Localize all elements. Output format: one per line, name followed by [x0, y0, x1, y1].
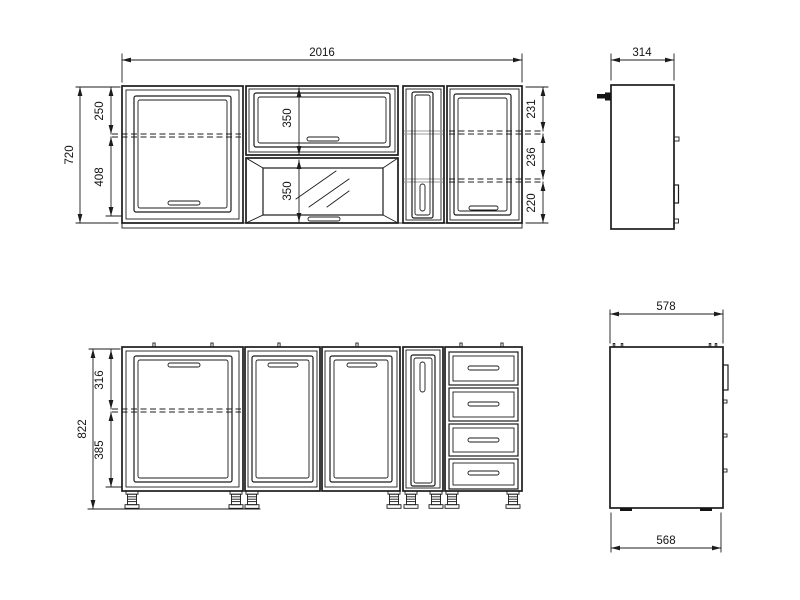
dim-label-wall-width: 2016: [309, 47, 335, 59]
side-carcass: [610, 347, 723, 508]
dim-label-231: 231: [526, 99, 538, 118]
cabinet-door: [254, 93, 390, 147]
dim-base-side-bottom-width: 568: [611, 513, 721, 552]
door-handle-vertical: [420, 184, 425, 211]
dim-label-316: 316: [94, 370, 106, 389]
drawer-handle-2: [468, 402, 499, 406]
cabinet-door-panel: [334, 360, 388, 478]
dim-label-822: 822: [77, 419, 89, 438]
wall-cabinet-middle-glass: [246, 158, 398, 223]
dim-label-220: 220: [526, 193, 538, 212]
cabinet-carcass-inner: [126, 351, 239, 487]
dim-base-side-depth: 578: [610, 301, 723, 343]
adjustable-foot: [245, 491, 259, 508]
dim-label-wall-height: 720: [64, 145, 76, 164]
frame-bevel: [246, 215, 263, 223]
door-handle: [168, 363, 200, 367]
wall-cabinet-side-view: 314: [597, 47, 679, 229]
drawer-panel-4: [453, 463, 514, 485]
cabinet-carcass-inner: [325, 351, 397, 487]
drawer-front-2: [449, 388, 518, 421]
base-cabinets-front-view: 822 316 385: [77, 343, 522, 509]
wall-cabinet-left: [112, 86, 243, 223]
cabinet-carcass-inner: [126, 90, 239, 219]
adjustable-feet: [125, 491, 520, 508]
drawer-panel-2: [453, 392, 514, 417]
dim-label-350-top: 350: [282, 108, 294, 127]
door-handle: [268, 363, 298, 367]
base-cabinet-left: [112, 347, 243, 491]
door-handle-vertical: [420, 362, 425, 392]
cabinet-carcass-inner: [248, 351, 317, 487]
dim-label-408: 408: [94, 167, 106, 186]
technical-drawing-canvas: 2016 720 250 408 350 350: [0, 0, 800, 600]
dim-label-236: 236: [526, 147, 538, 166]
dim-wall-left-sections: 250 408: [94, 87, 122, 216]
adjustable-foot: [125, 491, 139, 508]
adjustable-foot: [506, 491, 520, 508]
dim-label-250: 250: [94, 101, 106, 120]
cabinet-door: [252, 356, 313, 482]
door-handle: [307, 137, 339, 141]
cabinet-carcass-inner: [406, 89, 441, 220]
base-cabinet-side-view: 578 568: [610, 301, 728, 552]
glass-reflection-line: [309, 179, 349, 207]
cabinet-door: [411, 355, 435, 486]
door-handle: [308, 217, 340, 221]
drawer-handle-3: [468, 438, 499, 442]
cabinet-door-panel: [138, 360, 228, 478]
base-cabinet-second: [245, 347, 320, 491]
cabinet-door: [330, 356, 392, 482]
side-door-handle-mount: [605, 93, 611, 101]
cabinet-door: [134, 356, 232, 482]
dim-base-sections: 316 385: [94, 350, 122, 487]
base-drawer-unit: [445, 347, 522, 491]
side-foot: [700, 508, 712, 511]
dim-wall-total-height: 720: [64, 87, 120, 223]
dim-label-350-bottom: 350: [282, 181, 294, 200]
cabinet-carcass: [445, 347, 522, 491]
door-handle: [168, 201, 200, 205]
adjustable-foot: [429, 491, 443, 508]
wall-cabinets-front-view: 2016 720 250 408 350 350: [64, 47, 548, 228]
cabinet-door-panel: [256, 360, 309, 478]
dim-wall-right-sections: 231 236 220: [526, 87, 548, 223]
cabinet-door-panel: [415, 95, 430, 215]
cabinet-door: [454, 94, 511, 215]
wall-cabinet-middle-top: [246, 86, 398, 155]
wall-cabinet-narrow: [403, 86, 444, 223]
dim-label-385: 385: [94, 440, 106, 459]
cabinet-door-panel: [258, 97, 386, 143]
cabinet-carcass: [122, 347, 243, 491]
base-cabinet-third: [322, 347, 400, 491]
cabinet-drawing: 2016 720 250 408 350 350: [0, 0, 800, 600]
side-carcass: [611, 85, 674, 229]
drawer-panel-3: [453, 428, 514, 452]
drawer-handle-4: [468, 471, 499, 475]
dim-wall-total-width: 2016: [122, 47, 522, 82]
base-cabinet-narrow: [403, 347, 443, 491]
cabinet-carcass: [122, 86, 243, 223]
adjustable-foot: [404, 491, 418, 508]
cabinet-carcass: [403, 86, 444, 223]
cabinet-carcass: [403, 347, 443, 491]
dim-wall-side-depth: 314: [611, 47, 674, 80]
drawer-panel-1: [453, 356, 514, 381]
door-handle: [347, 363, 377, 367]
cabinet-door-panel: [458, 98, 507, 211]
side-foot: [620, 508, 632, 511]
cabinet-door: [134, 96, 231, 212]
dim-label-568: 568: [656, 535, 675, 547]
dim-label-578: 578: [656, 301, 675, 313]
drawer-front-1: [449, 352, 518, 385]
drawer-handle-1: [468, 366, 499, 370]
adjustable-foot: [387, 491, 401, 508]
frame-bevel: [383, 158, 398, 168]
frame-bevel: [246, 158, 263, 168]
dim-label-314: 314: [632, 47, 652, 59]
drawer-front-4: [449, 459, 518, 489]
cabinet-carcass: [246, 86, 398, 155]
adjustable-foot: [229, 491, 243, 508]
cabinet-door-panel: [414, 358, 432, 483]
cabinet-door-panel: [138, 100, 227, 208]
cabinet-carcass-inner: [450, 89, 519, 220]
adjustable-foot: [445, 491, 459, 508]
glass-reflection-line: [296, 171, 336, 199]
door-handle: [469, 206, 498, 210]
glass-reflection-line: [327, 191, 349, 207]
frame-bevel: [383, 215, 398, 223]
drawer-front-3: [449, 424, 518, 456]
glass-pane-frame: [263, 168, 383, 215]
